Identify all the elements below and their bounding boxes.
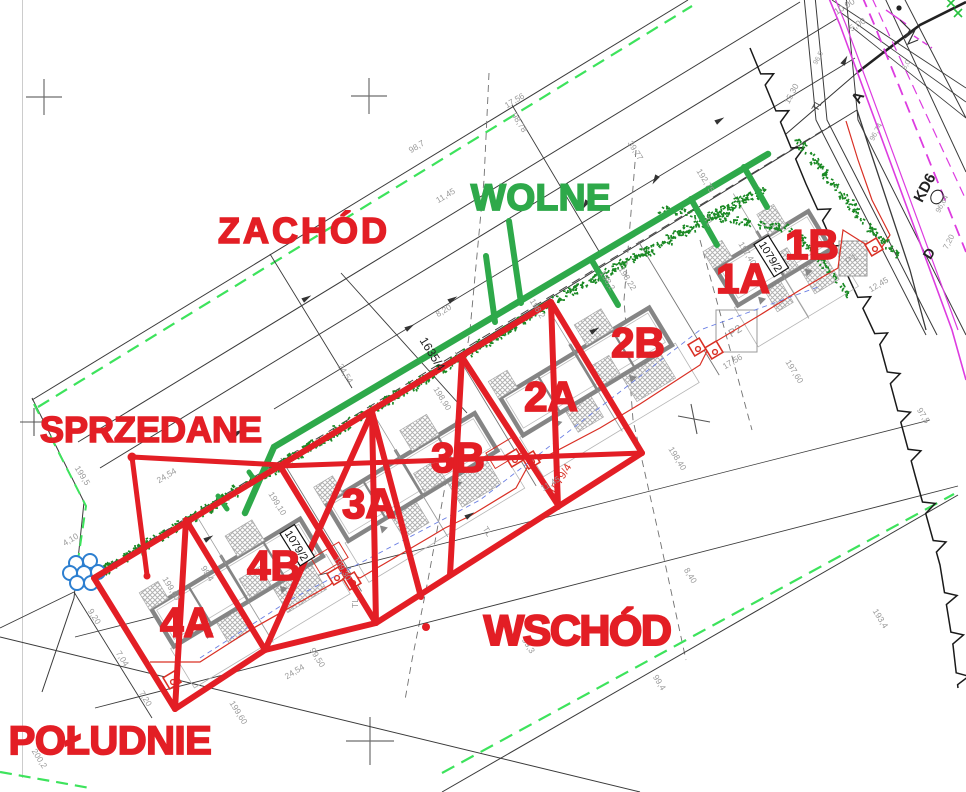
- svg-text:3B: 3B: [431, 434, 485, 481]
- svg-text:WSCHÓD: WSCHÓD: [484, 606, 671, 655]
- svg-text:4A: 4A: [160, 599, 214, 646]
- svg-text:SPRZEDANE: SPRZEDANE: [40, 409, 262, 450]
- svg-text:3A: 3A: [342, 480, 396, 527]
- svg-text:WOLNE: WOLNE: [471, 177, 611, 218]
- svg-text:2B: 2B: [611, 319, 665, 366]
- svg-text:4B: 4B: [247, 542, 301, 589]
- svg-text:ZACHÓD: ZACHÓD: [218, 209, 390, 251]
- svg-text:2A: 2A: [524, 373, 578, 420]
- svg-text:1A: 1A: [716, 255, 770, 302]
- svg-text:POŁUDNIE: POŁUDNIE: [9, 719, 212, 763]
- svg-text:1B: 1B: [785, 221, 839, 268]
- svg-text:TL: TL: [350, 598, 360, 608]
